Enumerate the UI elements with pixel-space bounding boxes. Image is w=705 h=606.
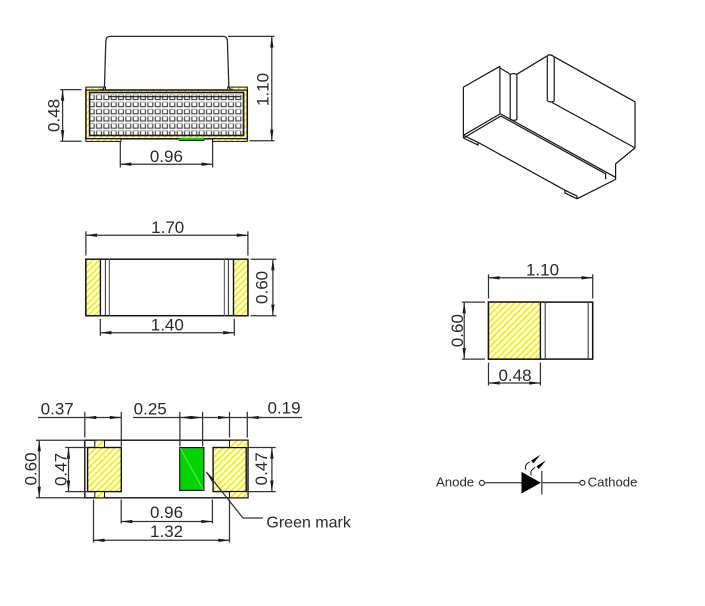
svg-text:0.48: 0.48 xyxy=(498,366,531,385)
svg-text:0.47: 0.47 xyxy=(51,453,70,486)
svg-text:0.37: 0.37 xyxy=(41,400,74,419)
svg-text:1.10: 1.10 xyxy=(253,73,272,106)
svg-text:0.96: 0.96 xyxy=(150,147,183,166)
svg-text:0.25: 0.25 xyxy=(134,400,167,419)
svg-text:1.40: 1.40 xyxy=(151,316,184,335)
svg-text:0.19: 0.19 xyxy=(267,398,300,417)
svg-text:0.47: 0.47 xyxy=(252,452,271,485)
svg-text:1.10: 1.10 xyxy=(526,260,559,279)
svg-text:0.96: 0.96 xyxy=(150,503,183,522)
svg-text:Cathode: Cathode xyxy=(588,474,638,489)
svg-text:0.48: 0.48 xyxy=(45,99,64,132)
svg-text:0.60: 0.60 xyxy=(22,452,41,485)
svg-text:Anode: Anode xyxy=(436,474,474,489)
svg-text:0.60: 0.60 xyxy=(448,314,467,347)
svg-text:1.70: 1.70 xyxy=(151,218,184,237)
svg-text:Green mark: Green mark xyxy=(266,515,351,532)
svg-text:1.32: 1.32 xyxy=(150,522,183,541)
svg-text:0.60: 0.60 xyxy=(253,271,272,304)
